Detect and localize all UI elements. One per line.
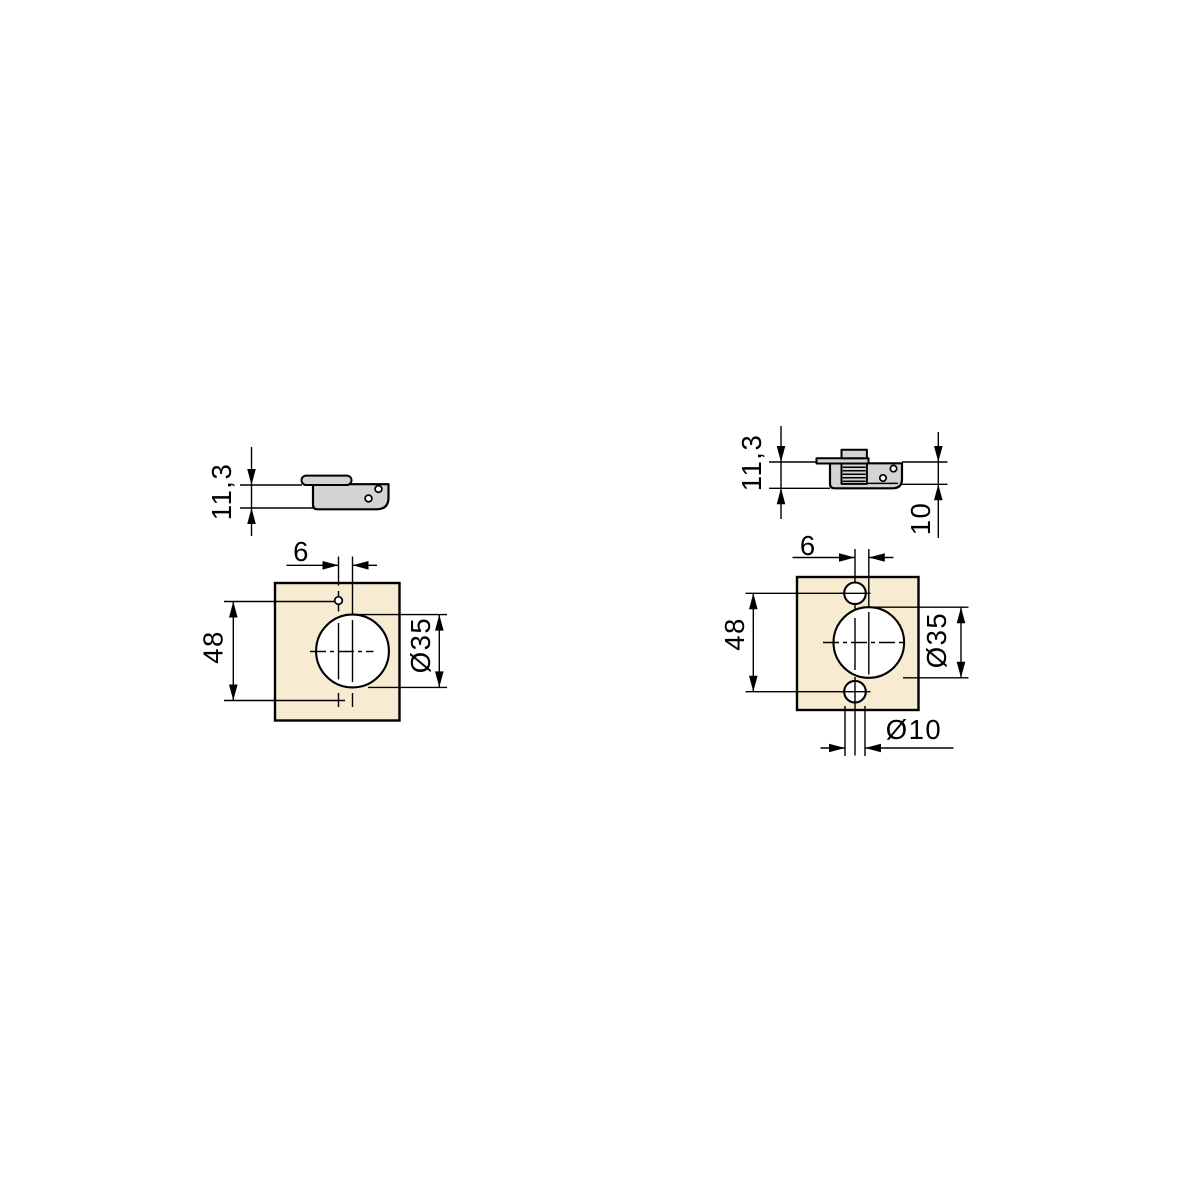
arm-hole (365, 495, 372, 502)
arrowhead (247, 508, 256, 524)
arrowhead (934, 484, 943, 500)
left-hinge-diagram: 11,3 6 48 (198, 447, 448, 721)
right-cup-offset-label: 6 (800, 530, 817, 561)
left-side-view: 11,3 (206, 447, 389, 536)
right-mount-depth-label: 10 (905, 502, 936, 536)
arrowhead (435, 671, 444, 687)
arrowhead (229, 685, 238, 701)
arrowhead (957, 607, 966, 623)
arrowhead (829, 744, 845, 753)
hinge-flange (302, 476, 352, 485)
right-screw-spacing-label: 48 (719, 617, 750, 651)
hinge-technical-drawing-canvas: 11,3 6 48 (0, 0, 1181, 1181)
right-cup-depth-label: 11,3 (736, 434, 767, 491)
arrowhead (323, 561, 339, 570)
arrowhead (869, 553, 885, 562)
arm-hole (375, 486, 382, 493)
arrowhead (749, 676, 758, 692)
arrowhead (229, 602, 238, 618)
arrowhead (247, 469, 256, 485)
pilot-hole (335, 597, 343, 605)
left-drill-pattern: 6 48 (198, 536, 448, 721)
right-drill-pattern: 6 48 (719, 530, 969, 756)
arrowhead (934, 446, 943, 462)
arrowhead (957, 662, 966, 678)
left-cup-diameter-label: Ø35 (405, 617, 436, 673)
right-hinge-diagram: 11,3 10 6 (719, 426, 969, 756)
arrowhead (353, 561, 369, 570)
right-cup-diameter-label: Ø35 (921, 612, 952, 668)
arrowhead (865, 744, 881, 753)
adjustment-knob (842, 450, 867, 459)
arrowhead (749, 593, 758, 609)
arrowhead (777, 488, 786, 504)
arm-hole (880, 475, 886, 481)
arrowhead (839, 553, 855, 562)
left-cup-depth-label: 11,3 (206, 463, 237, 520)
arm-hole (890, 465, 896, 471)
left-screw-spacing-label: 48 (198, 630, 229, 664)
hinge-technical-drawing: 11,3 6 48 (0, 0, 1181, 1181)
right-screw-diameter-label: Ø10 (886, 714, 942, 745)
left-cup-offset-label: 6 (293, 536, 310, 567)
arrowhead (777, 446, 786, 462)
arrowhead (435, 615, 444, 631)
right-side-view: 11,3 10 (736, 426, 948, 538)
